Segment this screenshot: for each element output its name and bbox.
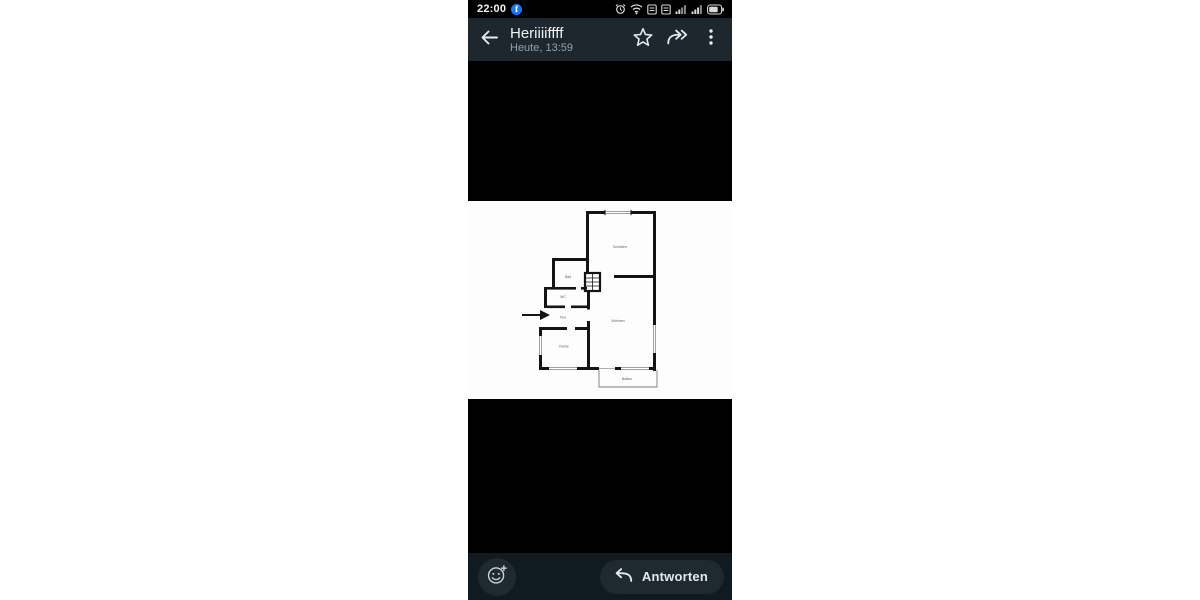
signal-icon [675,4,687,15]
facebook-notification-icon: f [511,4,522,15]
conversation-header[interactable]: Heriiiiffff Heute, 13:59 [510,25,628,55]
kebab-menu-icon [702,27,720,52]
screenshot-stage: 22:00 f [0,0,1200,600]
back-arrow-icon [479,27,500,53]
back-button[interactable] [474,22,504,58]
room-label-flur: Flur [560,316,567,320]
add-reaction-button[interactable] [478,558,516,596]
reply-button[interactable]: Antworten [600,560,724,594]
room-label-schlafen: Schlafen [613,245,627,249]
status-icons [615,3,724,15]
room-label-bad: Bad [565,275,571,279]
floorplan-walls [539,210,657,387]
message-timestamp: Heute, 13:59 [510,42,628,55]
entrance-arrow [522,310,550,320]
floorplan-image: Schlafen Bad WC Flur Wohnen Küche Balkon [519,203,659,393]
reply-arrow-icon [612,566,634,587]
status-time: 22:00 [477,3,506,15]
bottom-action-bar: Antworten [468,553,732,600]
room-label-wohnen: Wohnen [611,319,624,323]
forward-icon [665,27,689,52]
status-bar: 22:00 f [468,0,732,18]
menu-button[interactable] [696,22,726,58]
viewer-letterbox-bottom [468,399,732,553]
page-title: Heriiiiffff [510,25,628,42]
signal-icon [691,4,703,15]
wifi-icon [630,3,643,15]
battery-icon [707,4,724,15]
phone-screen: 22:00 f [468,0,732,600]
app-bar: Heriiiiffff Heute, 13:59 [468,18,732,61]
room-label-balkon: Balkon [622,377,632,381]
room-label-wc: WC [560,295,566,299]
alarm-icon [615,3,626,15]
photo-message-image[interactable]: Schlafen Bad WC Flur Wohnen Küche Balkon [468,201,732,399]
reply-button-label: Antworten [642,569,708,584]
forward-button[interactable] [662,22,692,58]
room-label-kueche: Küche [559,345,569,349]
volte-icon [661,4,671,15]
volte-icon [647,4,657,15]
star-icon [632,26,654,53]
add-reaction-icon [486,564,508,589]
star-button[interactable] [628,22,658,58]
viewer-letterbox-top [468,61,732,201]
